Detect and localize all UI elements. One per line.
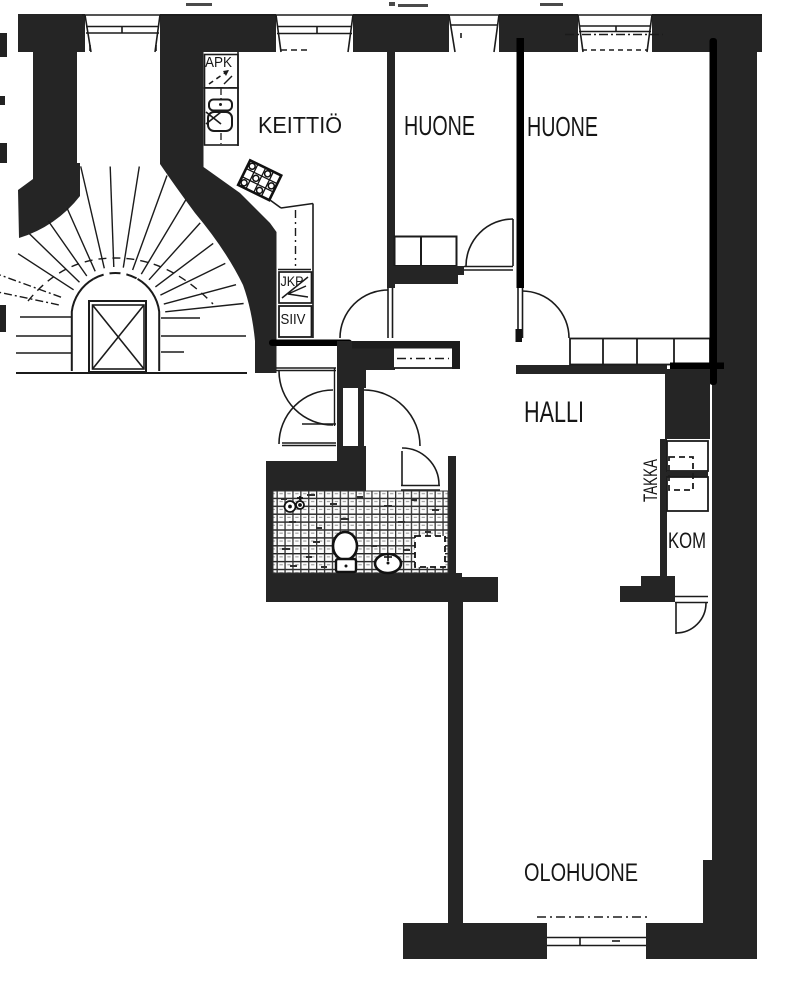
svg-text:TAKKA: TAKKA [641, 459, 662, 502]
svg-text:HUONE: HUONE [404, 110, 475, 141]
svg-text:HALLI: HALLI [524, 396, 584, 429]
svg-text:KEITTIÖ: KEITTIÖ [258, 112, 342, 138]
svg-text:KOM: KOM [668, 528, 706, 553]
svg-text:JKP: JKP [281, 274, 304, 289]
svg-text:SIIV: SIIV [281, 311, 306, 328]
svg-text:APK: APK [205, 55, 232, 71]
svg-text:OLOHUONE: OLOHUONE [524, 859, 638, 887]
svg-text:HUONE: HUONE [527, 111, 598, 142]
